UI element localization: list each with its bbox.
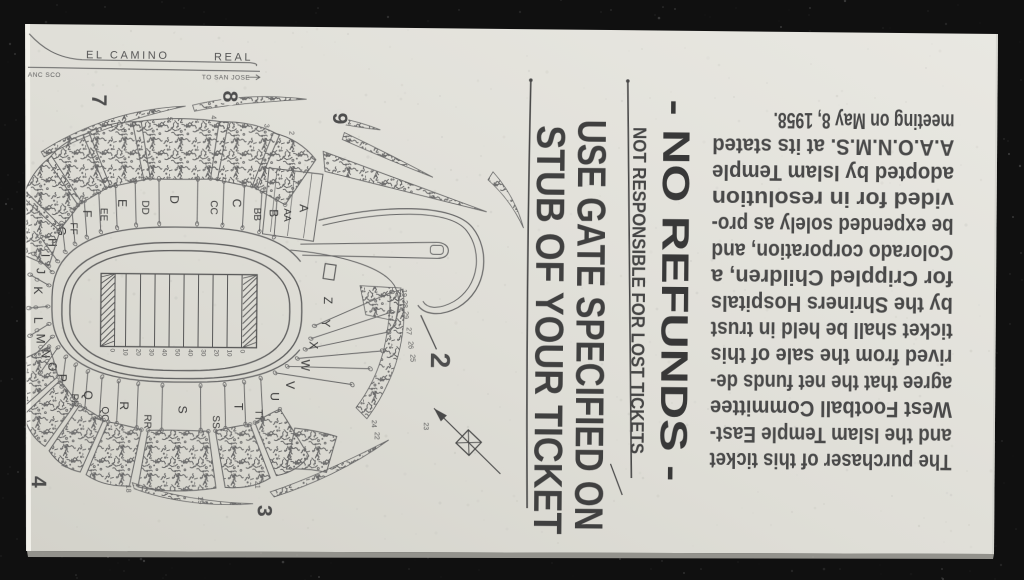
svg-text:L: L [31,317,45,324]
svg-text:E: E [115,199,129,207]
svg-text:meeting on May 8, 1958.: meeting on May 8, 1958. [773,108,954,135]
svg-text:for Crippled Children, a: for Crippled Children, a [710,264,953,291]
svg-text:29: 29 [402,311,409,319]
svg-text:6: 6 [119,129,126,133]
svg-text:DD: DD [139,200,150,215]
svg-text:26: 26 [406,341,413,349]
svg-text:NOT RESPONSIBLE FOR LOST TICKE: NOT RESPONSIBLE FOR LOST TICKETS [627,127,650,454]
svg-text:RR: RR [141,414,152,429]
svg-text:40: 40 [160,349,167,357]
svg-text:S: S [175,406,189,414]
svg-text:3: 3 [262,124,269,128]
svg-text:21: 21 [253,481,260,489]
svg-text:20: 20 [134,349,141,357]
svg-text:and the Islam Temple East-: and the Islam Temple East- [710,422,952,449]
svg-text:The purchaser of this ticket: The purchaser of this ticket [709,448,952,475]
svg-text:V: V [283,381,297,389]
svg-text:A: A [297,204,311,212]
svg-text:STUB OF YOUR TICKET: STUB OF YOUR TICKET [525,125,573,534]
svg-text:28: 28 [401,300,408,308]
svg-text:EL CAMINO: EL CAMINO [86,49,170,62]
svg-text:0: 0 [238,350,245,354]
svg-text:50: 50 [173,349,180,357]
svg-text:rived from the sale of this: rived from the sale of this [710,343,952,370]
svg-text:agree that the net funds de-: agree that the net funds de- [710,369,952,396]
svg-text:D: D [167,195,181,204]
svg-text:19: 19 [400,289,407,297]
svg-text:USE GATE SPECIFIED ON: USE GATE SPECIFIED ON [566,119,614,530]
svg-text:U: U [267,392,281,401]
svg-text:vided for in resolution: vided for in resolution [712,186,954,213]
svg-text:8: 8 [218,91,241,103]
svg-text:K: K [31,286,45,294]
svg-text:18: 18 [124,485,131,493]
svg-text:5: 5 [165,117,172,121]
svg-text:C: C [230,199,244,208]
svg-text:ANC SCO: ANC SCO [28,72,61,79]
svg-text:20: 20 [212,349,219,357]
svg-text:17: 17 [59,460,66,468]
svg-text:25: 25 [408,354,415,362]
svg-text:23: 23 [422,422,429,430]
svg-text:2: 2 [287,131,294,135]
svg-text:M: M [34,334,48,344]
svg-text:CC: CC [207,200,218,215]
svg-text:by the Shriners Hospitals: by the Shriners Hospitals [711,291,953,318]
svg-text:9: 9 [328,113,351,125]
svg-text:4: 4 [209,115,216,119]
svg-text:2: 2 [425,352,456,368]
svg-text:be expended solely as pro-: be expended solely as pro- [711,212,953,239]
svg-text:0: 0 [108,348,115,352]
svg-text:TO SAN JOSE: TO SAN JOSE [202,74,251,81]
svg-text:F: F [80,210,94,217]
svg-text:30: 30 [147,349,154,357]
svg-text:W: W [298,359,312,371]
svg-text:X: X [306,341,320,349]
svg-text:24: 24 [370,420,377,428]
svg-text:10: 10 [121,349,128,357]
svg-text:40: 40 [186,349,193,357]
svg-text:7: 7 [87,94,110,106]
svg-text:B: B [266,209,280,217]
svg-text:ticket shall be held in trust: ticket shall be held in trust [710,317,953,344]
svg-text:19: 19 [196,496,203,504]
svg-text:Z: Z [321,297,335,304]
svg-text:- NO REFUNDS -: - NO REFUNDS - [651,99,696,481]
svg-text:Y: Y [319,319,333,327]
svg-text:4: 4 [27,476,50,488]
svg-text:SS: SS [210,415,221,429]
svg-text:REAL: REAL [214,51,253,63]
svg-text:adopted by Islam Temple: adopted by Islam Temple [712,160,954,187]
svg-text:Q: Q [81,390,95,399]
svg-text:10: 10 [225,350,232,358]
svg-text:R: R [117,401,131,410]
svg-text:J: J [34,268,48,274]
svg-text:West Football Committee: West Football Committee [710,395,952,422]
svg-text:22: 22 [373,432,380,440]
svg-text:T: T [232,403,246,411]
svg-text:AA: AA [281,208,292,222]
svg-text:3: 3 [253,505,276,517]
svg-text:A.A.O.N.M.S. at its stated: A.A.O.N.M.S. at its stated [712,133,954,160]
svg-text:Colorado corporation, and: Colorado corporation, and [711,238,953,265]
svg-text:27: 27 [405,327,412,335]
svg-text:BB: BB [251,208,262,222]
svg-text:EE: EE [98,208,109,222]
svg-text:30: 30 [199,349,206,357]
